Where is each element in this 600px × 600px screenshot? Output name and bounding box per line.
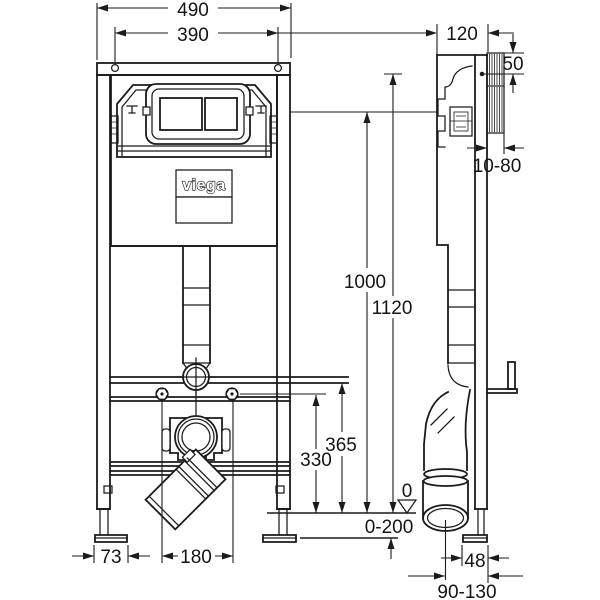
clip-left xyxy=(143,107,150,115)
dim-frame-width-label: 490 xyxy=(177,0,209,21)
reference-point-dot xyxy=(480,72,485,77)
dim-flush-height-label: 1000 xyxy=(344,272,386,293)
dim-bolt-spacing-label: 180 xyxy=(180,547,212,568)
dim-foot-offset-label: 73 xyxy=(100,547,121,568)
dim-outlet-wall-distance-label: 90-130 xyxy=(437,582,496,600)
fixing-bolt-left xyxy=(156,388,168,400)
fixing-bolt-right xyxy=(226,388,238,400)
dim-fixing-height-label: 330 xyxy=(300,450,332,471)
service-window-left xyxy=(160,98,202,130)
dim-top-clearance-label: 50 xyxy=(502,54,523,75)
installation-frame-technical-drawing: viega xyxy=(0,0,600,600)
brand-logo-text: viega xyxy=(182,177,225,194)
dim-wall-clearance-label: 10-80 xyxy=(473,156,522,177)
clip-right xyxy=(246,107,253,115)
service-window-right xyxy=(205,98,237,130)
dim-frame-depth-label: 120 xyxy=(446,24,478,45)
dim-floor-datum-label: 0 xyxy=(402,481,413,502)
dim-tank-width-label: 390 xyxy=(177,25,209,46)
paper-background xyxy=(0,0,600,600)
dim-frame-height-label: 1120 xyxy=(372,298,413,319)
dim-foot-depth-label: 48 xyxy=(464,551,485,572)
brand-label: viega xyxy=(176,170,232,223)
dim-floor-buildup-label: 0-200 xyxy=(365,517,414,538)
